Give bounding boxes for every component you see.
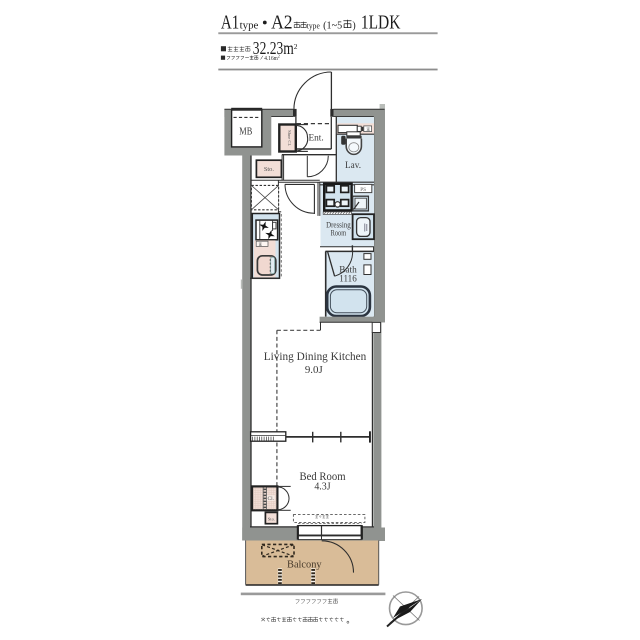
svg-text:): ) <box>352 20 355 31</box>
svg-text:Lav.: Lav. <box>345 161 361 171</box>
svg-text:9.0J: 9.0J <box>305 365 323 376</box>
svg-text:2: 2 <box>294 42 298 51</box>
svg-text:type: type <box>240 19 259 31</box>
svg-text:Cl.: Cl. <box>267 496 274 502</box>
svg-text:Shoe Cl.: Shoe Cl. <box>287 130 292 146</box>
svg-text:Sto.: Sto. <box>268 516 275 521</box>
svg-text:4.16m: 4.16m <box>264 55 278 62</box>
svg-text:Sto.: Sto. <box>264 166 275 173</box>
svg-text:1116: 1116 <box>339 274 357 284</box>
svg-text:type: type <box>307 21 320 30</box>
svg-text:A1: A1 <box>221 11 239 33</box>
svg-text:Room: Room <box>331 228 347 237</box>
svg-text:2: 2 <box>278 55 280 59</box>
svg-text:MB: MB <box>239 125 252 137</box>
svg-text:1LDK: 1LDK <box>361 11 401 33</box>
svg-text:Balcony: Balcony <box>287 560 322 571</box>
svg-text:A2: A2 <box>271 11 293 33</box>
svg-text:Ent.: Ent. <box>309 133 324 143</box>
svg-text:Living Dining Kitchen: Living Dining Kitchen <box>264 351 367 363</box>
svg-text:4.3J: 4.3J <box>314 482 330 493</box>
svg-text:(1~5: (1~5 <box>323 20 342 31</box>
svg-text:PS: PS <box>360 187 366 193</box>
